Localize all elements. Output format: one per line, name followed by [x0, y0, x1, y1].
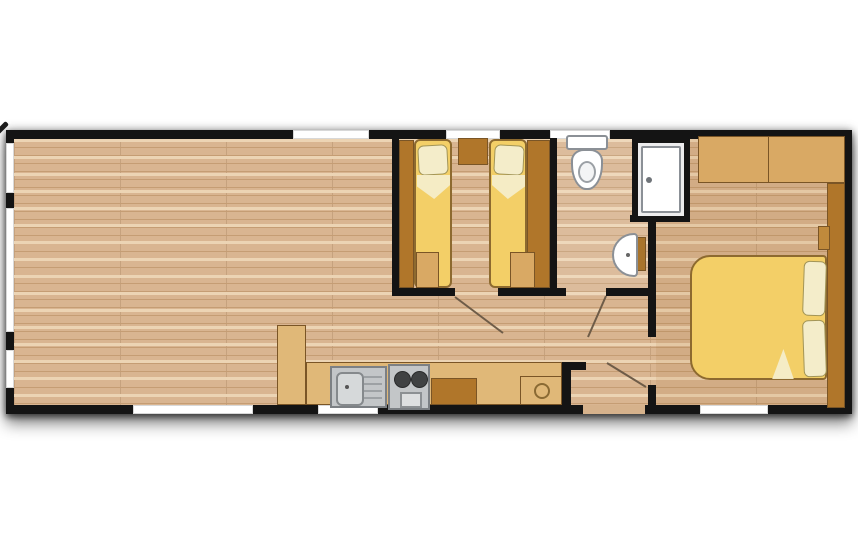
bathroom-bottom-wall-stub — [550, 288, 566, 296]
floor-plan-canvas — [0, 0, 858, 536]
drainer-line — [364, 383, 382, 385]
pillow — [802, 320, 827, 378]
twin-bottom-wall-left — [392, 288, 455, 296]
partition-twin-bathroom — [550, 138, 557, 296]
burner-icon — [394, 371, 411, 388]
window-top-living — [293, 130, 369, 139]
window-left-1 — [6, 143, 14, 193]
shower-door-handle-icon — [646, 177, 652, 183]
pillow — [802, 261, 827, 317]
wardrobe — [698, 136, 845, 183]
kitchen-sink-unit — [330, 366, 387, 408]
window-bottom-master — [700, 405, 768, 414]
oven-door — [400, 392, 422, 408]
blanket-fold — [417, 175, 450, 199]
toilet-cistern — [566, 135, 608, 150]
foot-cabinet-left — [416, 252, 439, 288]
partition-living-twin — [392, 138, 399, 296]
drainer-line — [364, 390, 382, 392]
kitchen-end-wall-cap — [562, 362, 586, 370]
double-bed — [690, 255, 827, 380]
shower-door-panel — [641, 146, 681, 213]
window-left-2 — [6, 208, 14, 332]
partition-hall-master-upper — [648, 220, 656, 337]
wardrobe-divider — [768, 137, 769, 182]
twin-side-rail-left — [399, 140, 414, 288]
twin-bottom-wall-right — [498, 288, 557, 296]
toilet-bowl-inner — [578, 161, 596, 183]
tall-cabinet — [277, 325, 306, 405]
basin-drain-icon — [626, 253, 630, 257]
window-bottom-living — [133, 405, 253, 414]
water-heater-cabinet — [520, 376, 562, 405]
headboard-shelf — [818, 226, 830, 250]
blanket-fold — [768, 349, 796, 379]
water-heater-circle-icon — [534, 383, 550, 399]
partition-hall-master-lower — [648, 385, 656, 414]
base-cabinet — [431, 378, 477, 405]
mobile-home-outline — [6, 130, 852, 414]
shower-cubicle — [632, 137, 690, 222]
corner-jack-mark — [0, 121, 9, 138]
entrance-door-opening — [583, 405, 645, 414]
drainer-line — [364, 376, 382, 378]
burner-icon — [411, 371, 428, 388]
foot-cabinet-right — [510, 252, 535, 288]
headboard-panel — [827, 183, 845, 408]
cooker — [388, 364, 430, 410]
blanket-fold — [492, 175, 525, 199]
drainer-line — [364, 397, 382, 399]
sink-bowl — [336, 372, 364, 406]
nightstand — [458, 138, 488, 165]
pillow — [417, 144, 449, 176]
pillow — [493, 144, 525, 176]
sink-drain-icon — [345, 385, 349, 389]
window-left-3 — [6, 350, 14, 388]
